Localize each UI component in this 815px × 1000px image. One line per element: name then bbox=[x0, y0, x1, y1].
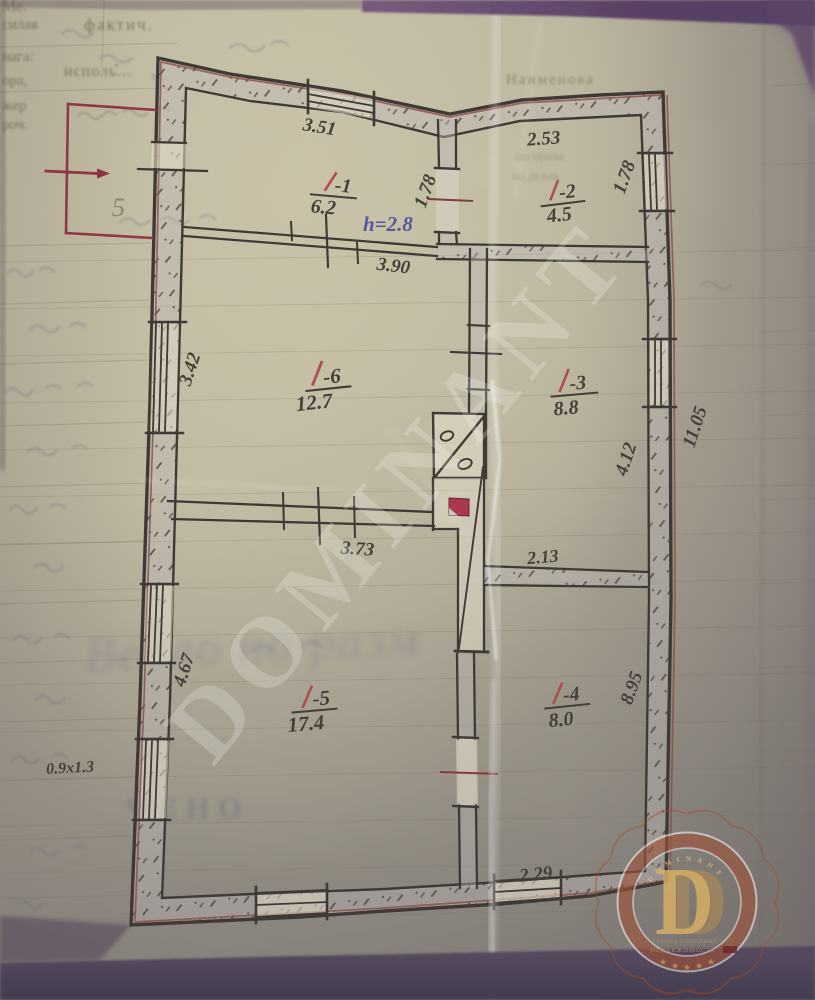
svg-text:НЕДВИЖИМОСТЬ: НЕДВИЖИМОСТЬ bbox=[651, 947, 716, 954]
svg-text:ГРУППА КОМПАНИЙ: ГРУППА КОМПАНИЙ bbox=[653, 937, 718, 945]
